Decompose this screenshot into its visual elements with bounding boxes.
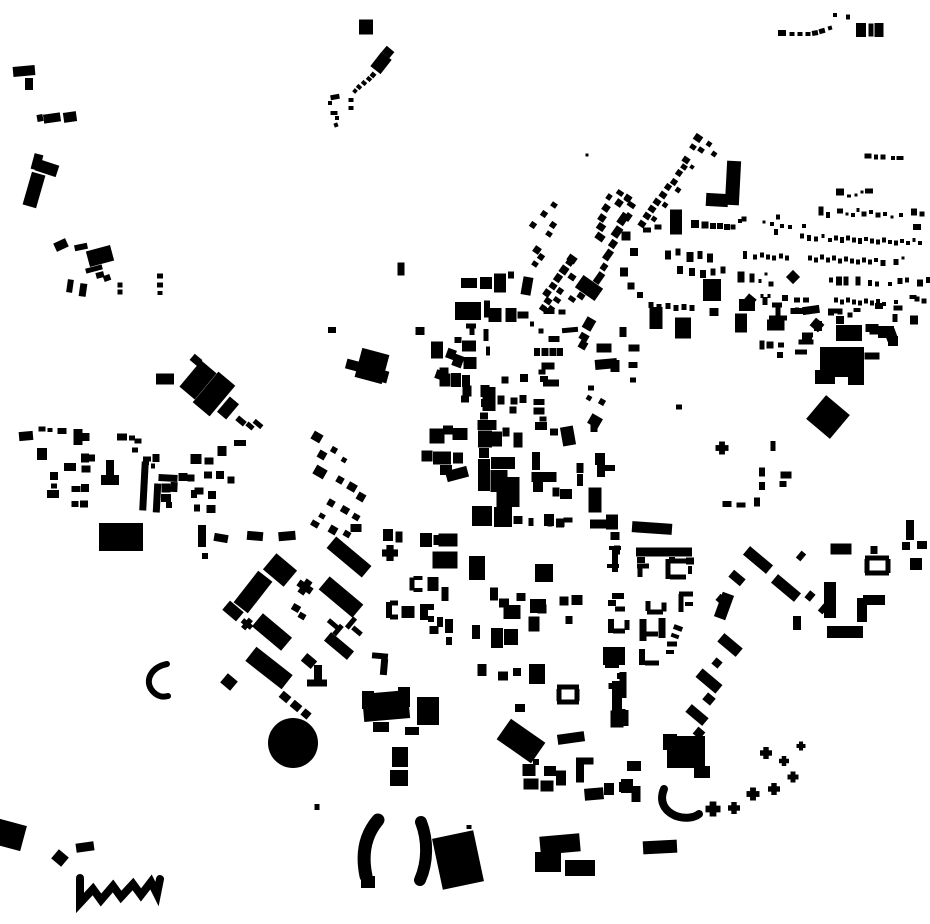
building-footprint <box>562 327 578 333</box>
building-footprint <box>328 101 332 105</box>
building-footprint <box>129 436 135 441</box>
building-footprint <box>617 673 623 679</box>
building-footprint <box>188 475 195 482</box>
building-footprint <box>852 300 856 305</box>
building-footprint <box>870 239 874 244</box>
building-footprint <box>671 633 680 639</box>
building-footprint <box>373 722 389 732</box>
building-footprint <box>710 223 716 229</box>
building-footprint <box>686 558 694 565</box>
building-footprint <box>72 501 79 507</box>
building-footprint <box>472 506 492 526</box>
building-footprint <box>690 305 695 311</box>
building-footprint <box>19 431 34 441</box>
building-footprint <box>162 484 171 493</box>
building-footprint <box>453 453 463 464</box>
building-footprint <box>863 595 885 605</box>
building-footprint <box>820 255 824 260</box>
building-footprint <box>216 471 224 479</box>
building-footprint <box>676 249 681 256</box>
building-footprint <box>420 533 432 547</box>
building-footprint <box>568 295 577 303</box>
building-footprint <box>588 386 594 391</box>
building-footprint <box>553 488 560 497</box>
building-footprint <box>501 457 515 469</box>
building-footprint <box>117 434 127 441</box>
building-footprint <box>307 680 327 687</box>
building-footprint <box>478 469 490 481</box>
building-footprint <box>830 309 843 314</box>
building-footprint <box>698 251 703 259</box>
building-footprint <box>484 329 489 341</box>
building-footprint <box>667 642 677 647</box>
building-footprint <box>234 571 273 614</box>
building-footprint <box>560 426 576 447</box>
building-footprint <box>498 396 505 405</box>
building-footprint <box>616 189 625 197</box>
building-footprint <box>82 466 91 473</box>
building-footprint <box>310 519 320 528</box>
building-footprint <box>328 327 336 333</box>
building-footprint <box>836 277 842 286</box>
building-footprint <box>675 318 691 339</box>
building-footprint <box>662 603 667 612</box>
building-footprint <box>802 224 806 228</box>
building-footprint <box>518 312 529 319</box>
building-footprint <box>340 505 350 515</box>
building-footprint <box>795 350 807 355</box>
building-footprint <box>804 590 815 601</box>
building-footprint <box>351 524 362 532</box>
building-footprint <box>529 617 540 632</box>
building-footprint <box>533 482 543 492</box>
building-footprint <box>442 587 449 601</box>
building-footprint <box>478 664 487 676</box>
building-footprint <box>422 451 433 462</box>
building-footprint <box>655 225 662 230</box>
building-footprint <box>717 223 723 229</box>
building-footprint <box>539 833 580 854</box>
building-footprint <box>396 532 403 543</box>
building-footprint <box>763 747 768 759</box>
building-footprint <box>567 273 576 282</box>
building-footprint <box>553 296 562 304</box>
building-footprint <box>556 771 566 786</box>
building-footprint <box>870 301 874 306</box>
building-footprint <box>807 333 813 338</box>
building-footprint <box>753 255 757 260</box>
building-footprint <box>846 298 850 303</box>
building-footprint <box>819 207 824 216</box>
building-footprint <box>913 238 916 242</box>
building-footprint <box>461 278 477 288</box>
building-footprint <box>349 98 354 102</box>
building-footprint <box>803 298 809 303</box>
building-footprint <box>327 536 372 577</box>
building-footprint <box>532 452 540 470</box>
building-footprint <box>0 819 27 851</box>
building-footprint <box>807 235 811 241</box>
building-footprint <box>834 236 838 241</box>
building-footprint <box>531 260 539 268</box>
building-footprint <box>550 348 557 356</box>
building-footprint <box>876 240 880 245</box>
building-footprint <box>139 461 149 510</box>
building-footprint <box>612 546 618 572</box>
building-footprint <box>637 557 645 563</box>
map-viewport <box>0 0 930 924</box>
building-footprint <box>742 217 747 222</box>
building-footprint <box>179 473 188 481</box>
building-footprint <box>689 143 697 151</box>
building-footprint <box>874 258 878 262</box>
building-footprint <box>247 531 264 541</box>
building-footprint <box>611 532 620 540</box>
building-footprint <box>796 551 806 562</box>
building-footprint <box>768 294 771 298</box>
building-footprint <box>511 398 518 405</box>
building-footprint <box>202 553 208 559</box>
building-footprint <box>846 213 849 216</box>
building-footprint <box>814 258 818 263</box>
building-footprint <box>170 482 178 492</box>
building-footprint <box>714 592 734 621</box>
building-footprint <box>557 348 563 356</box>
building-footprint <box>89 455 95 462</box>
building-footprint <box>392 747 408 767</box>
building-footprint <box>195 488 204 495</box>
building-footprint <box>862 258 866 263</box>
building-footprint <box>926 277 930 283</box>
building-footprint <box>675 187 682 194</box>
building-footprint <box>161 494 171 502</box>
building-footprint <box>675 169 683 177</box>
building-footprint <box>208 491 216 499</box>
building-footprint <box>351 626 363 637</box>
building-footprint <box>541 781 554 792</box>
building-footprint <box>533 759 539 765</box>
building-footprint <box>352 88 358 94</box>
building-footprint <box>665 251 671 260</box>
building-footprint <box>534 399 545 405</box>
building-footprint <box>840 237 844 243</box>
building-footprint <box>442 374 451 387</box>
building-footprint <box>679 594 684 612</box>
building-footprint-curved <box>149 664 168 697</box>
building-footprint <box>806 395 850 439</box>
building-footprint <box>540 417 547 422</box>
building-footprint <box>582 316 597 331</box>
building-footprint <box>432 830 484 890</box>
building-footprint <box>918 241 922 245</box>
building-footprint <box>517 593 526 601</box>
building-footprint <box>737 503 746 508</box>
building-footprint <box>743 546 773 574</box>
building-footprint <box>646 632 658 637</box>
building-footprint <box>765 273 768 276</box>
building-footprint <box>670 575 686 580</box>
building-footprint <box>548 282 557 291</box>
building-footprint <box>848 375 864 385</box>
building-footprint <box>850 259 854 264</box>
building-footprint <box>875 23 884 37</box>
building-footprint <box>620 710 629 726</box>
building-footprint <box>542 288 552 298</box>
building-footprint <box>151 464 155 469</box>
building-footprint-curved <box>420 822 426 880</box>
building-footprint <box>767 342 774 349</box>
building-footprint <box>693 133 704 143</box>
building-footprint <box>629 345 640 352</box>
building-footprint <box>118 290 123 295</box>
building-footprint <box>194 505 200 512</box>
building-footprint <box>324 632 354 660</box>
building-footprint <box>812 30 819 36</box>
building-footprint <box>750 274 755 283</box>
building-footprint <box>759 279 762 283</box>
building-footprint <box>544 308 555 314</box>
building-footprint <box>710 308 719 316</box>
building-footprint <box>417 697 439 725</box>
building-footprint <box>627 761 641 771</box>
building-footprint <box>497 477 520 507</box>
building-footprint <box>469 556 485 580</box>
building-footprint <box>865 154 872 159</box>
building-footprint <box>543 380 559 387</box>
building-footprint <box>899 213 903 217</box>
building-footprint <box>836 325 862 341</box>
building-footprint <box>910 558 922 570</box>
building-footprint <box>902 542 910 550</box>
building-footprint <box>577 463 584 473</box>
building-footprint <box>402 606 415 618</box>
building-footprint <box>300 708 311 719</box>
building-footprint <box>43 112 61 123</box>
building-footprint <box>153 483 162 512</box>
building-footprint <box>608 600 616 606</box>
building-footprint <box>86 245 114 267</box>
building-footprint <box>808 256 812 261</box>
building-footprint <box>81 454 89 463</box>
building-footprint <box>897 156 904 160</box>
building-footprint <box>278 531 296 541</box>
building-footprint <box>535 852 561 872</box>
building-footprint <box>503 428 510 437</box>
building-footprint <box>486 347 490 356</box>
building-footprint <box>101 475 119 485</box>
building-footprint <box>630 248 638 256</box>
building-footprint <box>710 802 717 817</box>
building-footprint <box>688 566 692 574</box>
building-footprint <box>763 297 768 305</box>
building-footprint-round <box>268 718 318 768</box>
building-footprint <box>297 612 306 621</box>
building-footprint <box>428 616 434 622</box>
building-footprint <box>513 668 521 676</box>
building-footprint <box>662 202 669 209</box>
building-footprint <box>906 241 910 245</box>
building-footprint <box>855 194 858 197</box>
building-footprint-curved <box>662 789 699 818</box>
building-footprint <box>891 156 895 160</box>
building-footprint <box>328 525 339 536</box>
building-footprint <box>118 283 123 288</box>
building-footprint <box>862 212 867 217</box>
building-footprint <box>398 263 405 276</box>
building-footprint <box>310 431 323 444</box>
building-footprint <box>64 463 76 471</box>
building-footprint <box>632 786 641 802</box>
building-footprint <box>888 240 892 244</box>
building-footprint <box>420 604 428 620</box>
building-footprint <box>99 523 143 551</box>
building-footprint <box>135 439 142 444</box>
building-footprint <box>153 454 160 462</box>
building-footprint <box>791 308 806 314</box>
building-footprint <box>443 426 453 435</box>
building-footprint <box>614 198 624 208</box>
building-footprint <box>372 652 388 659</box>
building-footprint <box>636 548 692 557</box>
building-footprint <box>597 213 607 223</box>
building-footprint <box>868 280 872 286</box>
building-footprint <box>253 419 264 429</box>
building-footprint <box>739 299 755 311</box>
building-footprint <box>769 282 774 287</box>
building-footprint <box>620 327 627 337</box>
building-footprint <box>840 300 844 305</box>
building-footprint <box>542 363 555 370</box>
building-footprint <box>530 322 534 327</box>
building-footprint <box>326 498 336 508</box>
building-footprint <box>645 661 659 666</box>
building-footprint <box>497 719 546 764</box>
building-footprint <box>53 238 69 252</box>
building-footprint <box>356 492 367 503</box>
building-footprint <box>780 481 787 487</box>
building-footprint <box>549 221 557 229</box>
building-footprint <box>74 243 88 252</box>
building-footprint <box>464 357 477 369</box>
building-footprint <box>881 260 886 266</box>
building-footprint <box>594 232 605 243</box>
building-footprint <box>483 387 496 411</box>
building-footprint <box>605 648 619 668</box>
building-footprint <box>523 764 536 776</box>
building-footprint <box>430 626 439 634</box>
building-footprint <box>405 727 419 735</box>
building-footprint <box>876 213 881 218</box>
building-footprint <box>564 518 573 523</box>
building-footprint <box>910 316 918 325</box>
building-footprint <box>584 787 604 801</box>
building-footprint <box>612 593 624 599</box>
building-footprint <box>83 433 90 441</box>
building-footprint <box>681 156 690 165</box>
building-footprint <box>848 313 853 318</box>
building-footprint <box>156 374 174 385</box>
building-footprint <box>478 420 497 430</box>
building-footprint <box>604 783 614 795</box>
building-footprint <box>759 482 765 490</box>
building-footprint <box>602 248 614 261</box>
building-footprint <box>335 116 339 120</box>
building-footprint <box>613 629 625 634</box>
building-footprint <box>869 210 873 214</box>
building-footprint <box>831 544 852 555</box>
building-footprint <box>630 378 636 383</box>
building-footprint <box>390 615 398 620</box>
building-footprint <box>911 209 917 216</box>
building-footprint <box>779 254 783 259</box>
building-footprint <box>856 23 866 37</box>
building-footprint <box>608 239 618 250</box>
building-footprint <box>514 433 523 448</box>
building-footprint <box>882 238 886 243</box>
building-footprint <box>711 151 718 158</box>
building-footprint <box>846 15 850 20</box>
building-footprint <box>836 189 844 196</box>
building-footprint <box>782 756 787 766</box>
building-footprint <box>36 114 43 122</box>
building-footprint <box>13 65 36 77</box>
building-footprint <box>349 106 354 110</box>
building-footprint <box>252 613 292 650</box>
building-footprint <box>506 308 517 322</box>
building-footprint <box>543 297 552 306</box>
building-footprint <box>362 691 374 709</box>
building-footprint <box>771 574 801 602</box>
building-footprint <box>711 269 716 276</box>
building-footprint <box>520 395 527 403</box>
building-footprint-curved <box>364 820 378 876</box>
building-footprint <box>622 232 631 241</box>
building-footprint <box>881 155 886 160</box>
building-footprint <box>650 307 663 329</box>
building-footprint <box>430 429 445 444</box>
building-footprint <box>529 518 534 526</box>
building-footprint <box>833 13 837 17</box>
building-footprint <box>639 649 645 665</box>
building-footprint <box>143 459 149 465</box>
building-footprint <box>467 825 472 829</box>
building-footprint <box>685 602 693 606</box>
building-footprint <box>777 352 783 358</box>
building-footprint <box>707 254 713 263</box>
building-footprint <box>760 341 765 350</box>
building-footprint <box>652 198 661 207</box>
building-footprint <box>865 353 880 360</box>
building-footprint <box>342 530 351 539</box>
building-footprint <box>798 32 803 36</box>
building-footprint <box>498 672 508 681</box>
building-footprint <box>560 597 569 606</box>
building-footprint <box>771 783 776 795</box>
building-footprint <box>331 111 338 115</box>
building-footprint <box>629 362 638 368</box>
building-footprint <box>814 237 818 242</box>
building-footprint <box>694 766 710 778</box>
building-footprint <box>433 452 451 465</box>
building-footprint <box>864 237 868 241</box>
building-footprint <box>894 300 898 304</box>
building-footprint <box>218 446 227 456</box>
building-footprint <box>702 692 715 705</box>
building-footprint <box>917 541 927 549</box>
building-footprint <box>235 415 247 426</box>
building-footprint <box>291 603 301 613</box>
building-footprint <box>480 277 492 289</box>
